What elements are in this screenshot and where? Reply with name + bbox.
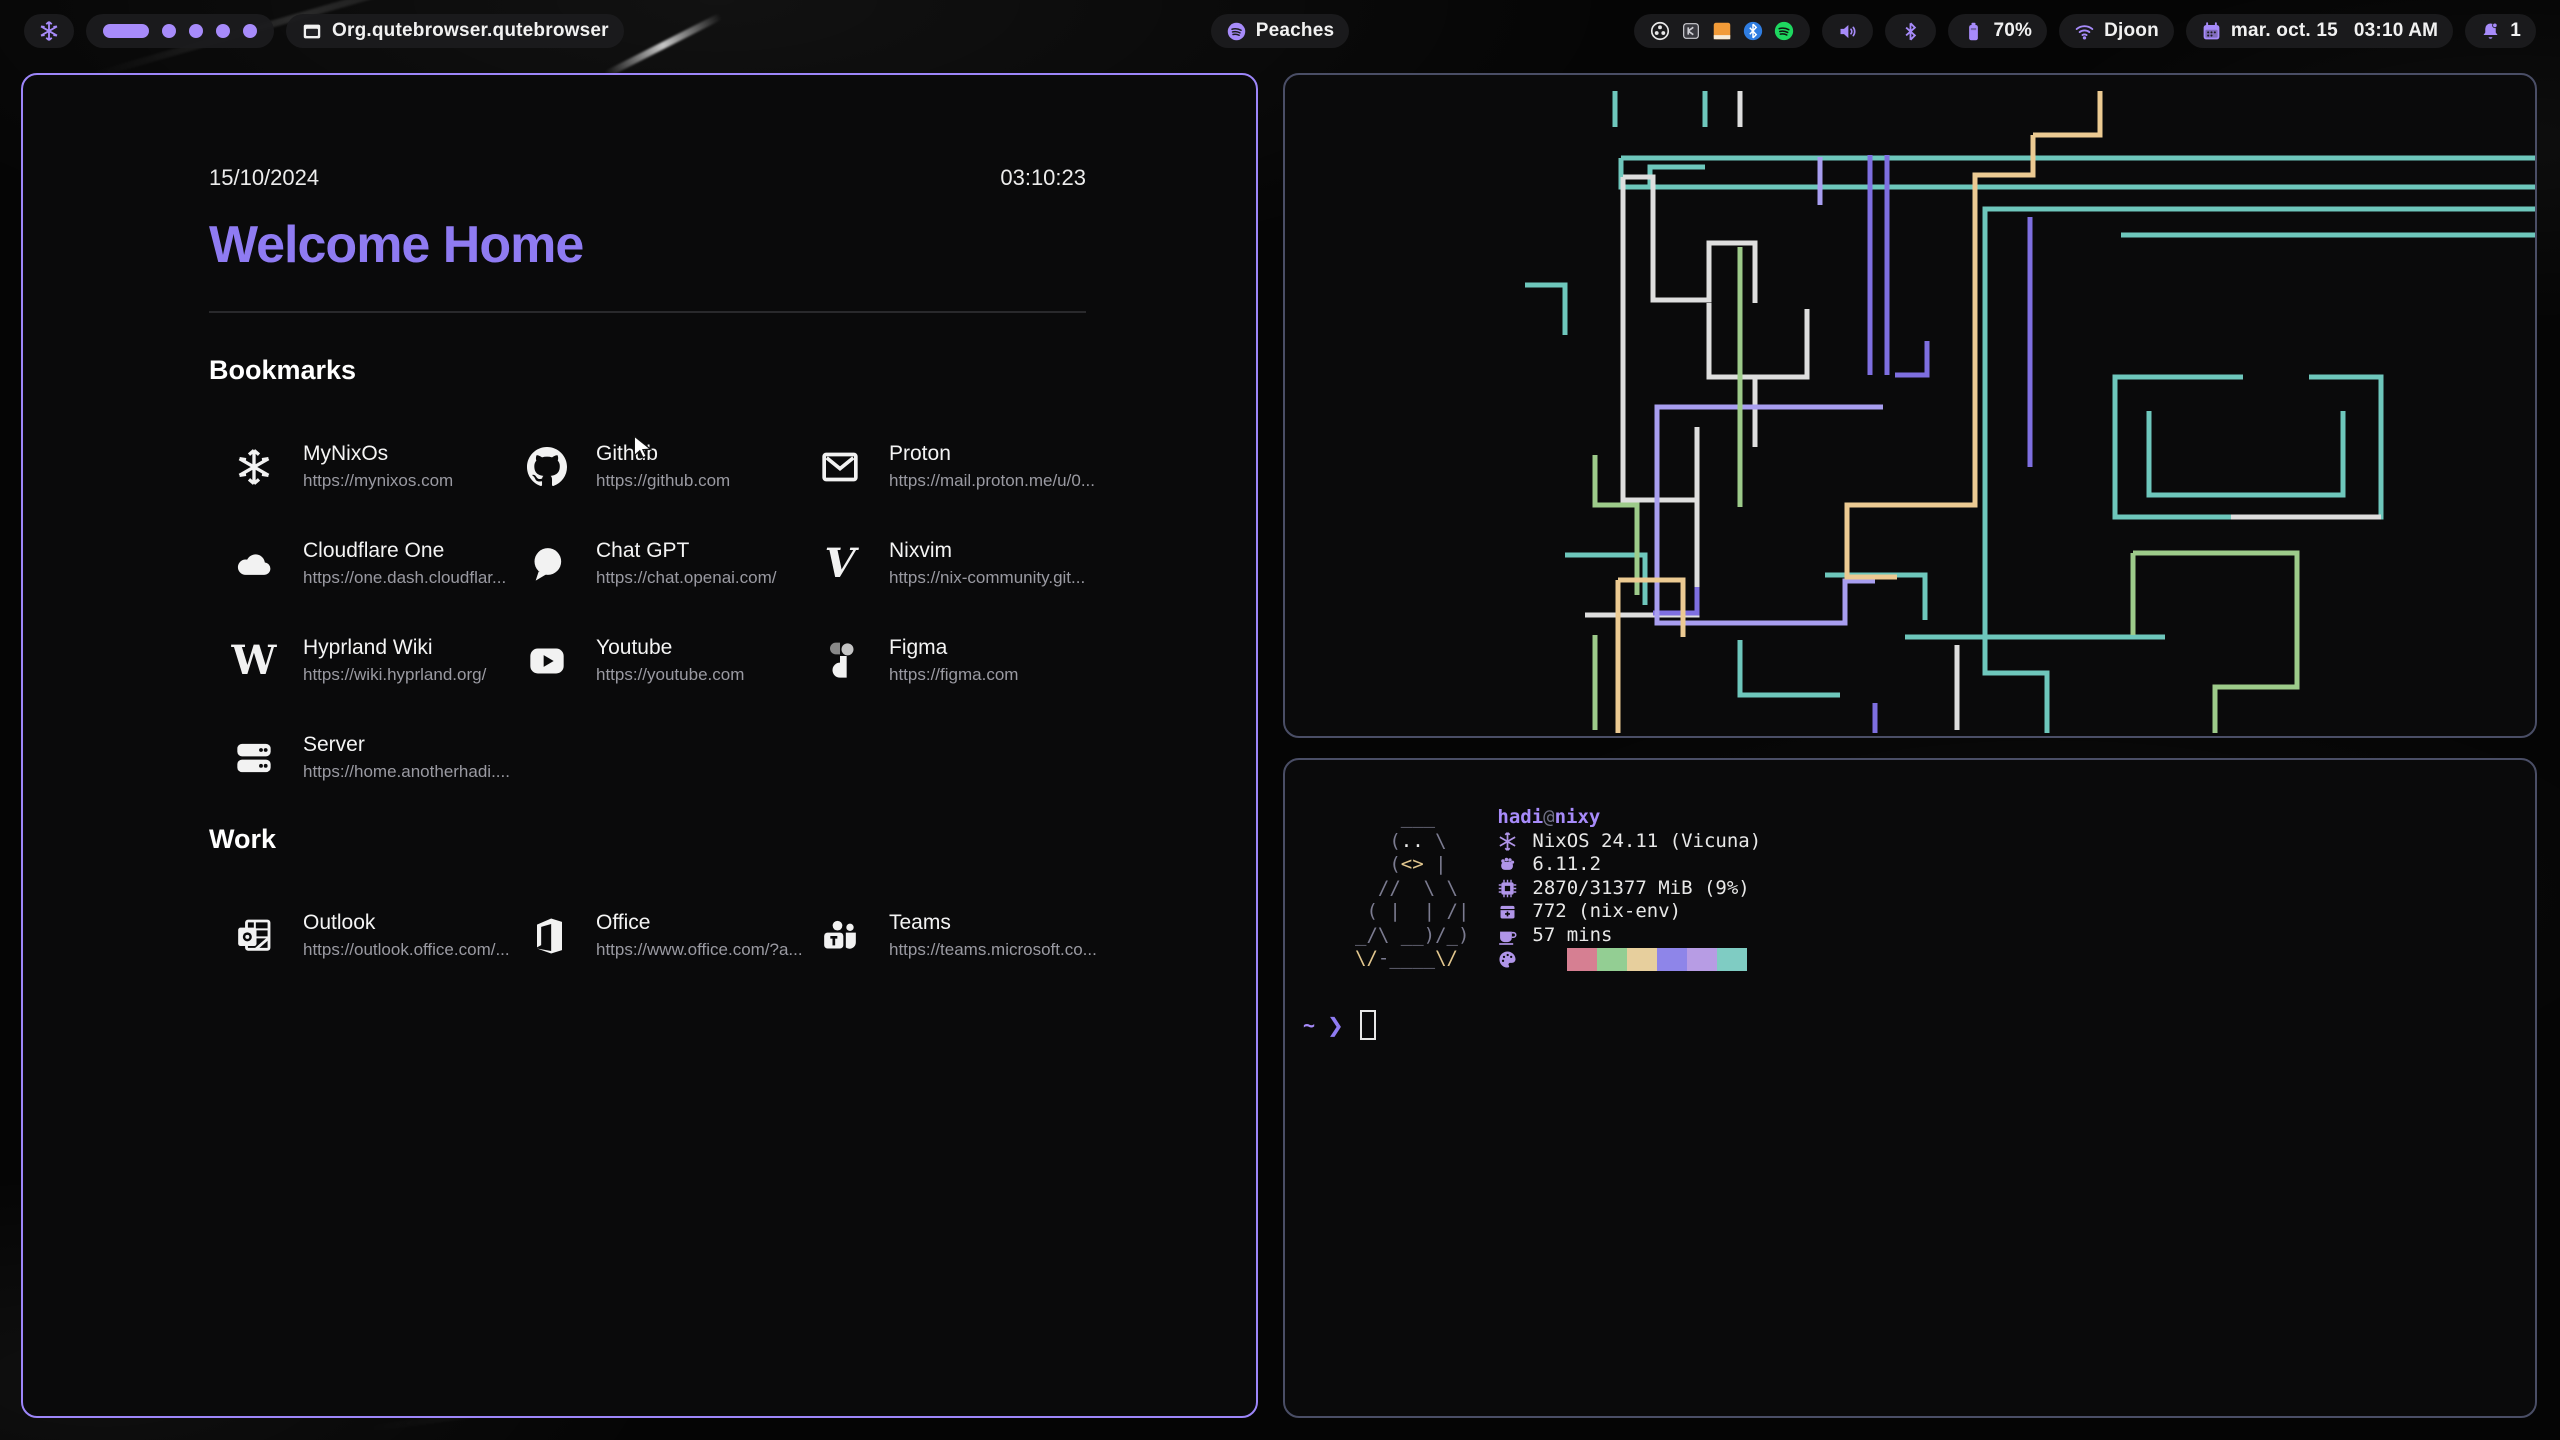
- bookmark-text: Githubhttps://github.com: [596, 442, 730, 491]
- bookmark-text: Cloudflare Onehttps://one.dash.cloudflar…: [303, 539, 506, 588]
- bookmark-url: https://www.office.com/?a...: [596, 940, 803, 960]
- youtube-play-icon: [524, 638, 570, 684]
- bookmark-item[interactable]: Githubhttps://github.com: [524, 442, 817, 491]
- bookmark-item[interactable]: Teamshttps://teams.microsoft.co...: [817, 911, 1110, 960]
- bookmark-item[interactable]: Outlookhttps://outlook.office.com/...: [231, 911, 524, 960]
- fetch-value: NixOS 24.11 (Vicuna): [1532, 830, 1761, 854]
- vim-v-icon: V: [817, 541, 863, 587]
- prompt-path: ~: [1303, 1013, 1315, 1037]
- github-icon: [524, 444, 570, 490]
- bookmark-item[interactable]: Figmahttps://figma.com: [817, 636, 1110, 685]
- bookmark-text: Serverhttps://home.anotherhadi....: [303, 733, 510, 782]
- workspace-indicator[interactable]: [86, 14, 274, 48]
- palette-swatch: [1717, 948, 1747, 971]
- fastfetch-output: ___ (.. \ (<> | // \ \ ( | | /| _/\ __)/…: [1355, 806, 1761, 971]
- active-window-title-pill[interactable]: Org.qutebrowser.qutebrowser: [286, 14, 624, 48]
- bookmark-item[interactable]: MyNixOshttps://mynixos.com: [231, 442, 524, 491]
- notifications-pill[interactable]: 1: [2465, 14, 2536, 48]
- server-stack-icon: [231, 735, 277, 781]
- fetch-row: 2870/31377 MiB (9%): [1497, 877, 1761, 901]
- active-window-title: Org.qutebrowser.qutebrowser: [332, 20, 609, 42]
- bookmark-item[interactable]: WHyprland Wikihttps://wiki.hyprland.org/: [231, 636, 524, 685]
- keepassxc-icon[interactable]: [1680, 20, 1702, 42]
- terminal-window[interactable]: ___ (.. \ (<> | // \ \ ( | | /| _/\ __)/…: [1283, 758, 2537, 1418]
- fastfetch-info: hadi@nixy NixOS 24.11 (Vicuna)6.11.22870…: [1497, 806, 1761, 971]
- section-heading: Work: [209, 824, 1086, 855]
- clock-time: 03:10 AM: [2354, 20, 2438, 42]
- fetch-at: @: [1543, 806, 1554, 828]
- wifi-icon: [2074, 21, 2095, 42]
- bookmark-title: Figma: [889, 636, 1018, 660]
- bookmark-title: Cloudflare One: [303, 539, 506, 563]
- memory-icon: [1497, 878, 1518, 899]
- spotify-icon: [1226, 21, 1247, 42]
- uptime-icon: [1497, 925, 1518, 946]
- bookmark-text: Youtubehttps://youtube.com: [596, 636, 744, 685]
- bookmark-title: Youtube: [596, 636, 744, 660]
- battery-percent: 70%: [1993, 20, 2032, 42]
- figma-icon: [817, 638, 863, 684]
- media-track-title: Peaches: [1256, 20, 1335, 42]
- bookmark-grid: MyNixOshttps://mynixos.comGithubhttps://…: [231, 442, 1086, 782]
- nixos-snowflake-icon: [38, 20, 60, 42]
- bookmark-item[interactable]: VNixvimhttps://nix-community.git...: [817, 539, 1110, 588]
- bookmark-text: Chat GPThttps://chat.openai.com/: [596, 539, 777, 588]
- notification-count: 1: [2510, 20, 2521, 42]
- wikipedia-w-icon: W: [231, 638, 277, 684]
- startpage: 15/10/2024 03:10:23 Welcome Home Bookmar…: [23, 75, 1256, 960]
- volume-button[interactable]: [1822, 14, 1873, 48]
- teams-icon: [817, 913, 863, 959]
- fetch-user: hadi: [1497, 806, 1543, 828]
- palette-swatch: [1627, 948, 1657, 971]
- battery-status[interactable]: 70%: [1948, 14, 2047, 48]
- cloud-icon: [231, 541, 277, 587]
- fetch-value: 6.11.2: [1532, 853, 1601, 877]
- bookmark-item[interactable]: Chat GPThttps://chat.openai.com/: [524, 539, 817, 588]
- calendar-icon: [2201, 21, 2222, 42]
- bookmark-title: Outlook: [303, 911, 510, 935]
- fetch-host: nixy: [1555, 806, 1601, 828]
- volume-icon: [1837, 21, 1858, 42]
- fetch-value: 57 mins: [1532, 924, 1612, 948]
- top-bar-right: 70% Djoon mar. oct. 15 03:10 AM 1: [1634, 14, 2536, 48]
- orange-app-icon[interactable]: [1711, 20, 1733, 42]
- fetch-palette-row: [1497, 947, 1761, 971]
- startpage-date-row: 15/10/2024 03:10:23: [209, 165, 1086, 191]
- bookmark-title: Server: [303, 733, 510, 757]
- section-heading: Bookmarks: [209, 355, 1086, 386]
- divider: [209, 311, 1086, 313]
- system-tray: [1634, 14, 1810, 48]
- bookmark-text: Hyprland Wikihttps://wiki.hyprland.org/: [303, 636, 486, 685]
- outlook-icon: [231, 913, 277, 959]
- envelope-icon: [817, 444, 863, 490]
- page-title: Welcome Home: [209, 215, 1086, 275]
- bookmark-url: https://github.com: [596, 471, 730, 491]
- clock-pill[interactable]: mar. oct. 15 03:10 AM: [2186, 14, 2453, 48]
- clock-date: mar. oct. 15: [2231, 20, 2338, 42]
- bookmark-grid: Outlookhttps://outlook.office.com/...Off…: [231, 911, 1086, 960]
- prompt-symbol: ❯: [1327, 1013, 1344, 1037]
- bookmark-url: https://teams.microsoft.co...: [889, 940, 1097, 960]
- bookmark-title: Hyprland Wiki: [303, 636, 486, 660]
- bookmark-text: MyNixOshttps://mynixos.com: [303, 442, 453, 491]
- workspace-dot[interactable]: [162, 24, 176, 38]
- bookmark-title: Github: [596, 442, 730, 466]
- kernel-icon: [1497, 854, 1518, 875]
- palette-swatch: [1687, 948, 1717, 971]
- bookmark-text: Figmahttps://figma.com: [889, 636, 1018, 685]
- bell-icon: [2480, 21, 2501, 42]
- office-icon: [524, 913, 570, 959]
- package-icon: [1497, 901, 1518, 922]
- bookmark-item[interactable]: Protonhttps://mail.proton.me/u/0...: [817, 442, 1110, 491]
- bookmark-title: Teams: [889, 911, 1097, 935]
- bookmark-item[interactable]: Youtubehttps://youtube.com: [524, 636, 817, 685]
- nixos-launcher-button[interactable]: [24, 14, 74, 48]
- bookmark-url: https://youtube.com: [596, 665, 744, 685]
- fetch-row: 772 (nix-env): [1497, 900, 1761, 924]
- qutebrowser-window: 15/10/2024 03:10:23 Welcome Home Bookmar…: [21, 73, 1258, 1418]
- network-status[interactable]: Djoon: [2059, 14, 2174, 48]
- palette-icon: [1497, 949, 1518, 970]
- nixos-snowflake-icon: [231, 444, 277, 490]
- fetch-row: 6.11.2: [1497, 853, 1761, 877]
- terminal-color-palette: [1567, 948, 1747, 971]
- snowflake-icon: [1497, 831, 1518, 852]
- startpage-date: 15/10/2024: [209, 165, 319, 191]
- bookmark-url: https://one.dash.cloudflar...: [303, 568, 506, 588]
- pipes-screensaver-art: [1285, 75, 2535, 736]
- workspace-dot[interactable]: [189, 24, 203, 38]
- palette-swatch: [1597, 948, 1627, 971]
- bookmark-title: Nixvim: [889, 539, 1085, 563]
- palette-swatch: [1657, 948, 1687, 971]
- bookmark-text: Protonhttps://mail.proton.me/u/0...: [889, 442, 1095, 491]
- bookmark-url: https://nix-community.git...: [889, 568, 1085, 588]
- bookmark-text: Teamshttps://teams.microsoft.co...: [889, 911, 1097, 960]
- fetch-value: 772 (nix-env): [1532, 900, 1681, 924]
- bluetooth-blue-icon[interactable]: [1742, 20, 1764, 42]
- bookmark-title: Chat GPT: [596, 539, 777, 563]
- palette-swatch: [1567, 948, 1597, 971]
- bookmark-item[interactable]: Serverhttps://home.anotherhadi....: [231, 733, 524, 782]
- terminal-cursor: [1360, 1010, 1376, 1040]
- chat-bubble-icon: [524, 541, 570, 587]
- bookmark-text: Nixvimhttps://nix-community.git...: [889, 539, 1085, 588]
- workspace-dot[interactable]: [216, 24, 230, 38]
- bookmark-item[interactable]: Officehttps://www.office.com/?a...: [524, 911, 817, 960]
- user-host: hadi@nixy: [1497, 806, 1761, 830]
- media-player-pill[interactable]: Peaches: [1211, 14, 1350, 48]
- fetch-row: 57 mins: [1497, 924, 1761, 948]
- bluetooth-icon: [1900, 21, 1921, 42]
- startpage-clock: 03:10:23: [1000, 165, 1086, 191]
- bookmark-item[interactable]: Cloudflare Onehttps://one.dash.cloudflar…: [231, 539, 524, 588]
- battery-icon: [1963, 21, 1984, 42]
- shell-prompt[interactable]: ~ ❯: [1303, 1010, 1376, 1040]
- window-icon: [301, 20, 323, 42]
- bookmark-title: Proton: [889, 442, 1095, 466]
- bookmark-title: MyNixOs: [303, 442, 453, 466]
- bookmark-url: https://mail.proton.me/u/0...: [889, 471, 1095, 491]
- fetch-row: NixOS 24.11 (Vicuna): [1497, 830, 1761, 854]
- workspace-active[interactable]: [103, 24, 149, 38]
- bluetooth-button[interactable]: [1885, 14, 1936, 48]
- mouse-cursor: [630, 434, 656, 460]
- bookmark-url: https://wiki.hyprland.org/: [303, 665, 486, 685]
- bookmark-url: https://home.anotherhadi....: [303, 762, 510, 782]
- pipes-terminal-window: [1283, 73, 2537, 738]
- bookmark-title: Office: [596, 911, 803, 935]
- bookmark-url: https://mynixos.com: [303, 471, 453, 491]
- network-name: Djoon: [2104, 20, 2159, 42]
- workspace-dot[interactable]: [243, 24, 257, 38]
- bookmark-text: Officehttps://www.office.com/?a...: [596, 911, 803, 960]
- bookmark-url: https://chat.openai.com/: [596, 568, 777, 588]
- obs-icon[interactable]: [1649, 20, 1671, 42]
- bookmark-url: https://outlook.office.com/...: [303, 940, 510, 960]
- fetch-value: 2870/31377 MiB (9%): [1532, 877, 1749, 901]
- bookmark-text: Outlookhttps://outlook.office.com/...: [303, 911, 510, 960]
- tux-ascii-art: ___ (.. \ (<> | // \ \ ( | | /| _/\ __)/…: [1355, 806, 1469, 971]
- bookmark-url: https://figma.com: [889, 665, 1018, 685]
- spotify-green-icon[interactable]: [1773, 20, 1795, 42]
